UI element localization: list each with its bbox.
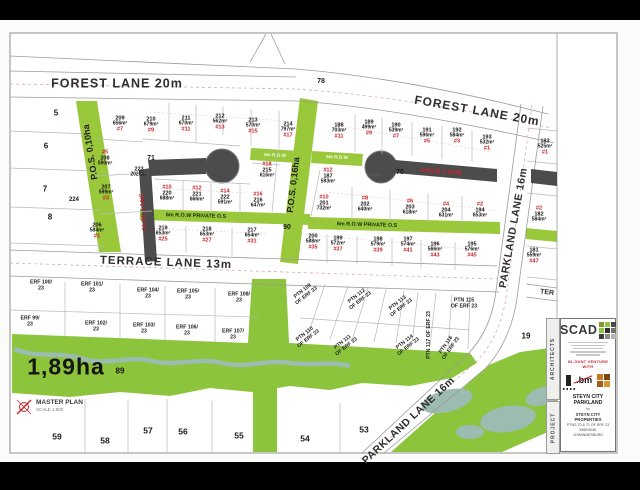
parcel-erf-100-23: ERF 100/23 — [30, 280, 52, 291]
project-client: STEYN CITY PROPERTIES — [563, 412, 613, 422]
lot-195: 195576m²#45 — [465, 241, 480, 259]
firm-logo-text: SCAD — [560, 324, 597, 337]
aloe-lane-label: ALOE LANE — [139, 193, 148, 232]
firm-logo: SCAD — [563, 322, 613, 339]
lot-206: 206584m²#1 — [90, 222, 105, 240]
forest-lane-east-label: FOREST LANE 20m — [413, 94, 540, 129]
plot-8: 8 — [48, 214, 52, 223]
legend-title: MASTER PLAN — [36, 399, 116, 406]
row-west-label: 6m R.O.W — [264, 153, 286, 159]
logo-square — [597, 374, 603, 380]
arum-lane-label: ARUM LANE — [420, 167, 463, 177]
plot-6: 6 — [44, 143, 48, 152]
lot-221: #12221666m² — [190, 185, 205, 203]
portion-224: 224 — [69, 197, 79, 203]
portion-78: 78 — [317, 78, 325, 86]
parcel-erf-108-23: ERF 108/23 — [228, 292, 250, 303]
legend: MASTER PLAN SCALE 1:500 — [16, 399, 116, 412]
lot-218: 218653m²#27 — [200, 226, 215, 244]
lot-223: 2232025m² — [130, 166, 147, 177]
parcel-ptn-114: PTN 114OF ERF 23 — [393, 333, 421, 358]
terrace-lane-label: TERRACE LANE 13m — [100, 254, 233, 271]
logo-square — [604, 374, 610, 380]
lot-220: #10220688m² — [160, 184, 175, 202]
plot-7: 7 — [43, 186, 47, 195]
lot-215: #18215616m² — [260, 161, 275, 179]
parcel-ptn-110: PTN 110OF ERF 23 — [293, 325, 321, 350]
portion-71: 71 — [147, 155, 155, 163]
lot-194: #2194653m² — [473, 201, 488, 219]
lot-213: 213570m²#15 — [246, 117, 261, 135]
parcel-ptn-116: PTN 116OF ERF 23 — [437, 333, 461, 361]
lot-219: 219653m²#25 — [156, 225, 171, 243]
row-east-label: 6m R.O.W — [326, 155, 348, 161]
joint-venture-text: IN JOINT VENTURE WITH — [563, 359, 613, 369]
parcel-erf-99-23: ERF 99/23 — [20, 316, 39, 327]
logo-square — [605, 328, 610, 333]
lot-191: 191596m²#5 — [420, 127, 435, 145]
lot-216: #16216647m² — [251, 191, 266, 209]
logo-square — [597, 381, 603, 387]
lot-182: #2182584m² — [532, 205, 547, 223]
partner-logos: .bm — [563, 371, 613, 390]
logo-square — [611, 322, 616, 327]
lot-193: 193532m²#1 — [480, 134, 495, 152]
project-detail-3: JOHANNESBURG — [563, 433, 613, 437]
lot-199: 199572m²#37 — [331, 235, 346, 253]
parcel-ptn-113: PTN 113OF ERF 23 — [386, 294, 414, 319]
parcel-erf-101-23: ERF 101/23 — [81, 282, 103, 293]
lot-209: 209656m²#7 — [113, 115, 128, 133]
erf-54: 54 — [300, 434, 309, 443]
lot-207: 207599m²#3 — [99, 184, 114, 202]
lot-202: #8202640m² — [358, 195, 373, 213]
lot-204: #4204631m² — [439, 201, 454, 219]
lot-187: #12187593m² — [321, 167, 336, 185]
parcel-erf-105-23: ERF 105/23 — [177, 289, 199, 300]
spine-project-label: PROJECT — [550, 412, 556, 443]
logo-square — [611, 328, 616, 333]
lot-212: 212562m²#13 — [213, 113, 228, 131]
parkland-lane-south-label: PARKLAND LANE 16m — [360, 375, 457, 467]
parcel-erf-103-23: ERF 103/23 — [133, 323, 155, 334]
lot-210: 210679m²#9 — [144, 116, 159, 134]
project-detail-1: PTNS 70 & 71 OF ERF 23 — [563, 423, 613, 427]
lot-190: 190539m²#7 — [389, 122, 404, 140]
logo-square — [605, 322, 610, 327]
terrace-lane-east-clip-label: TER — [540, 288, 555, 297]
lot-208: #5208590m² — [98, 149, 113, 167]
lot-183: 183525m²#1 — [538, 138, 553, 156]
titleblock-spine-architects: ARCHITECTS — [546, 318, 560, 400]
lot-197: 197574m²#41 — [401, 236, 416, 254]
partner-mark-icon — [566, 375, 571, 386]
parcel-ptn-112: PTN 112OF ERF 23 — [345, 287, 373, 312]
map-label-layer: FOREST LANE 20mFOREST LANE 20mTERRACE LA… — [0, 0, 640, 490]
culdesac-area: 1494m² — [367, 174, 383, 179]
legend-scale: SCALE 1:500 — [36, 407, 116, 412]
erf-56: 56 — [178, 427, 187, 436]
portion-90: 90 — [283, 224, 291, 232]
partner-grid-logo — [597, 374, 610, 387]
forest-lane-west-label: FOREST LANE 20m — [51, 77, 183, 91]
park-area-label: 1,89ha — [27, 355, 105, 380]
title-block: SCAD IN JOINT VENTURE WITH .bm STEYN CIT… — [560, 318, 616, 452]
logo-square — [599, 334, 604, 339]
lot-222: #14222591m² — [218, 188, 233, 206]
partner-bm-logo: .bm — [576, 375, 592, 385]
plot-19: 19 — [522, 333, 531, 342]
lot-200: 200588m²#35 — [306, 233, 321, 251]
project-for: for — [563, 407, 613, 411]
address-text-illegible — [563, 342, 613, 356]
lot-189: 189499m²#9 — [362, 119, 377, 137]
portion-89: 89 — [116, 368, 125, 377]
erf-58: 58 — [100, 436, 109, 445]
lot-211: 211670m²#11 — [179, 115, 194, 133]
firm-logo-squares — [599, 322, 616, 339]
parcel-erf-102-23: ERF 102/23 — [85, 321, 107, 332]
project-detail-2: MIDRAND — [563, 428, 613, 432]
lot-196: 196566m²#43 — [428, 241, 443, 259]
master-plan-page: FOREST LANE 20mFOREST LANE 20mTERRACE LA… — [0, 0, 640, 490]
parcel-ptn-109: PTN 109OF ERF 23 — [291, 282, 319, 307]
parcel-ptn-117: PTN 117 OF ERF 23 — [427, 311, 433, 359]
pos-016ha-label: P.O.S. 0,16ha — [286, 157, 302, 214]
lot-198: 198579m²#39 — [371, 236, 386, 254]
parkland-lane-label: PARKLAND LANE 16m — [498, 167, 530, 289]
parcel-erf-107-23: ERF 107/23 — [222, 329, 244, 340]
logo-square — [605, 334, 610, 339]
lot-201: #10201732m² — [317, 194, 332, 212]
lot-192: 192584m²#3 — [450, 127, 465, 145]
lot-203: #6203618m² — [403, 198, 418, 216]
portion-70: 70 — [396, 169, 404, 177]
lot-217: 217654m²#31 — [245, 227, 260, 245]
parcel-ptn-115: PTN 115OF ERF 23 — [451, 298, 477, 309]
erf-55: 55 — [234, 431, 243, 440]
plot-5: 5 — [54, 110, 58, 119]
project-name: STEYN CITY PARKLAND — [563, 394, 613, 406]
lot-181: 181559m²#47 — [527, 247, 542, 265]
logo-square — [599, 322, 604, 327]
parcel-ptn-111: PTN 111OF ERF 23 — [331, 333, 359, 358]
logo-square — [604, 381, 610, 387]
north-arrow-icon — [16, 399, 32, 415]
lot-188: 188703m²#11 — [332, 122, 347, 140]
parcel-erf-106-23: ERF 106/23 — [176, 325, 198, 336]
row-private-east-label: 6m R.O.W PRIVATE O.S — [337, 222, 397, 229]
parcel-erf-104-23: ERF 104/23 — [137, 288, 159, 299]
titleblock-spine-project: PROJECT — [546, 401, 560, 454]
lot-214: 214797m²#17 — [281, 121, 296, 139]
erf-59: 59 — [52, 432, 61, 441]
spine-architects-label: ARCHITECTS — [550, 338, 556, 380]
row-private-west-label: 6m R.O.W PRIVATE O.S — [166, 213, 226, 220]
erf-53: 53 — [359, 425, 368, 434]
erf-57: 57 — [143, 426, 152, 435]
logo-square — [611, 334, 616, 339]
logo-square — [599, 328, 604, 333]
